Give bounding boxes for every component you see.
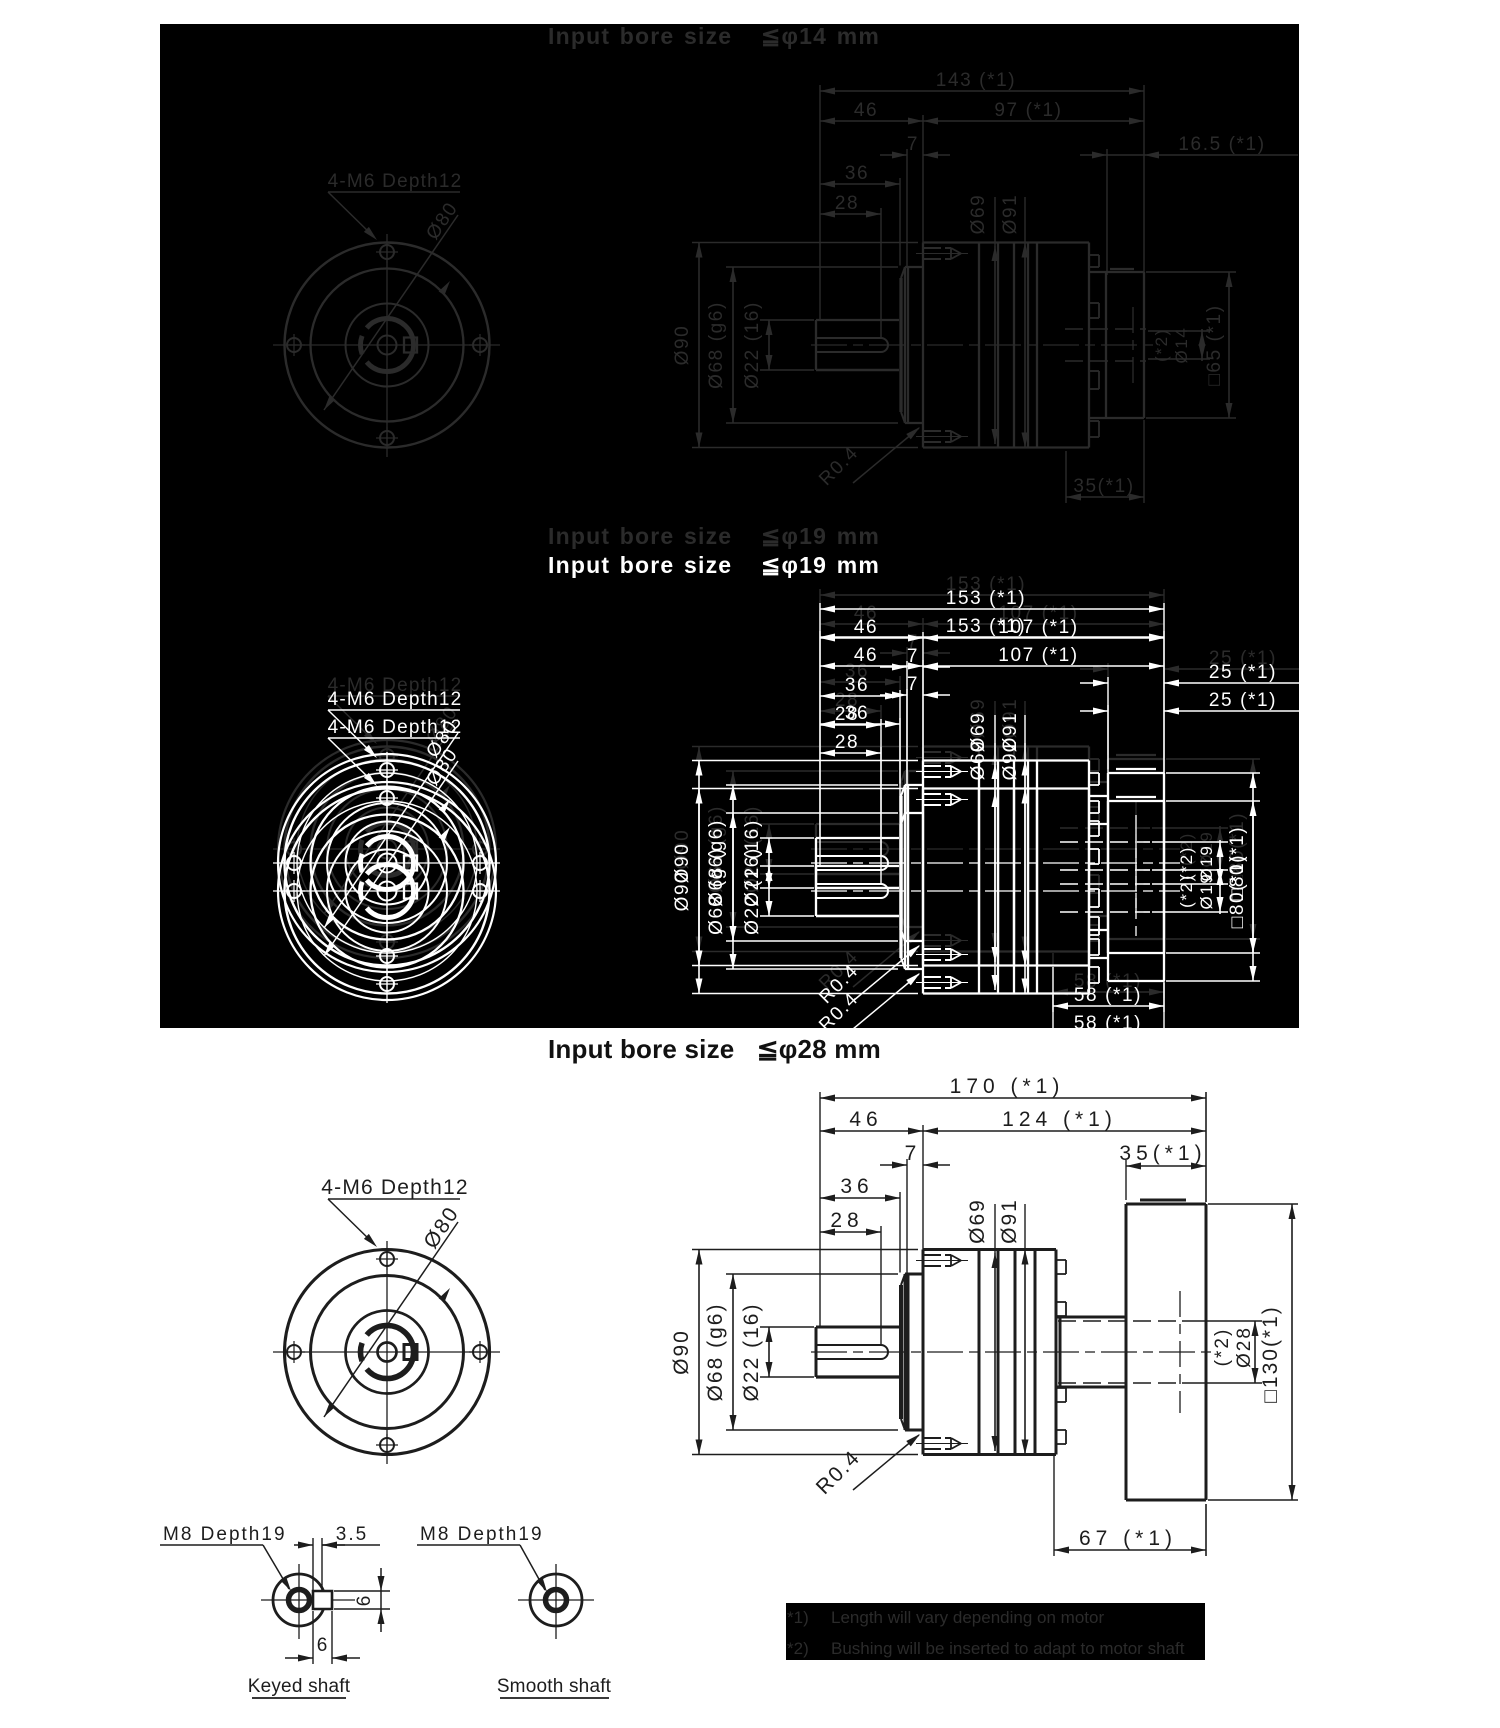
svg-text:143 (*1): 143 (*1)	[936, 70, 1016, 91]
svg-text:36: 36	[845, 703, 869, 724]
svg-text:7: 7	[907, 674, 919, 695]
svg-text:107 (*1): 107 (*1)	[998, 645, 1078, 666]
svg-text:Ø22 (16): Ø22 (16)	[740, 1303, 763, 1402]
svg-text:58 (*1): 58 (*1)	[1074, 985, 1142, 1006]
svg-text:Smooth shaft: Smooth shaft	[497, 1676, 612, 1697]
svg-text:Ø91: Ø91	[1000, 740, 1021, 781]
svg-text:(*2): (*2)	[1212, 1328, 1233, 1367]
svg-text:35(*1): 35(*1)	[1073, 476, 1134, 497]
svg-text:28: 28	[835, 193, 859, 214]
svg-text:Ø68 (g6): Ø68 (g6)	[704, 1303, 727, 1402]
svg-text:153 (*1): 153 (*1)	[946, 616, 1026, 637]
svg-text:46: 46	[854, 645, 878, 666]
svg-text:46: 46	[854, 100, 878, 121]
svg-text:6: 6	[354, 1594, 375, 1607]
svg-text:Ø90: Ø90	[672, 325, 693, 366]
svg-text:97 (*1): 97 (*1)	[994, 100, 1062, 121]
svg-text:4-M6 Depth12: 4-M6 Depth12	[321, 1176, 468, 1199]
svg-text:Ø91: Ø91	[998, 1198, 1021, 1244]
svg-text:4-M6 Depth12: 4-M6 Depth12	[328, 171, 463, 192]
svg-text:28: 28	[835, 732, 859, 753]
svg-text:28: 28	[830, 1209, 863, 1232]
svg-text:6: 6	[317, 1635, 330, 1656]
svg-text:Ø28: Ø28	[1234, 1326, 1255, 1368]
svg-text:67 (*1): 67 (*1)	[1079, 1527, 1177, 1550]
svg-text:Ø90: Ø90	[670, 1329, 693, 1375]
svg-text:Ø14: Ø14	[1172, 327, 1191, 364]
svg-text:7: 7	[905, 1142, 922, 1165]
svg-text:Ø68 (g6): Ø68 (g6)	[706, 847, 727, 935]
svg-text:Ø69: Ø69	[966, 1198, 989, 1244]
svg-text:25 (*1): 25 (*1)	[1209, 690, 1277, 711]
svg-text:Ø69: Ø69	[968, 740, 989, 781]
svg-text:□130(*1): □130(*1)	[1259, 1305, 1282, 1403]
svg-text:36: 36	[845, 675, 869, 696]
svg-text:4-M6 Depth12: 4-M6 Depth12	[328, 717, 463, 738]
svg-text:Ø69: Ø69	[968, 194, 989, 235]
svg-text:M8 Depth19: M8 Depth19	[163, 1524, 287, 1545]
svg-text:25 (*1): 25 (*1)	[1209, 662, 1277, 683]
svg-text:16.5 (*1): 16.5 (*1)	[1178, 134, 1265, 155]
svg-text:Ø68 (g6): Ø68 (g6)	[706, 301, 727, 389]
svg-text:4-M6 Depth12: 4-M6 Depth12	[328, 689, 463, 710]
svg-text:M8 Depth19: M8 Depth19	[420, 1524, 544, 1545]
svg-text:46: 46	[849, 1108, 882, 1131]
svg-text:7: 7	[907, 134, 919, 155]
svg-text:Ø91: Ø91	[1000, 194, 1021, 235]
svg-text:(*2): (*2)	[1152, 328, 1171, 362]
svg-text:Ø22 (16): Ø22 (16)	[742, 301, 763, 389]
svg-text:3.5: 3.5	[336, 1524, 368, 1545]
svg-text:36: 36	[845, 163, 869, 184]
svg-text:35(*1): 35(*1)	[1119, 1142, 1206, 1165]
svg-text:□65 (*1): □65 (*1)	[1204, 304, 1225, 385]
svg-text:170 (*1): 170 (*1)	[950, 1075, 1065, 1098]
svg-text:Ø22 (16): Ø22 (16)	[742, 847, 763, 935]
svg-text:46: 46	[854, 617, 878, 638]
svg-text:(*2): (*2)	[1177, 874, 1196, 908]
svg-text:R0.4: R0.4	[815, 442, 863, 490]
svg-text:36: 36	[840, 1175, 873, 1198]
svg-text:124 (*1): 124 (*1)	[1002, 1108, 1117, 1131]
svg-text:□80(*1): □80(*1)	[1227, 854, 1248, 928]
svg-text:Keyed shaft: Keyed shaft	[248, 1676, 351, 1697]
svg-text:58 (*1): 58 (*1)	[1074, 1013, 1142, 1034]
svg-text:Ø19: Ø19	[1197, 873, 1216, 910]
svg-text:R0.4: R0.4	[812, 1446, 865, 1499]
svg-text:153 (*1): 153 (*1)	[946, 588, 1026, 609]
svg-text:Ø90: Ø90	[672, 871, 693, 912]
